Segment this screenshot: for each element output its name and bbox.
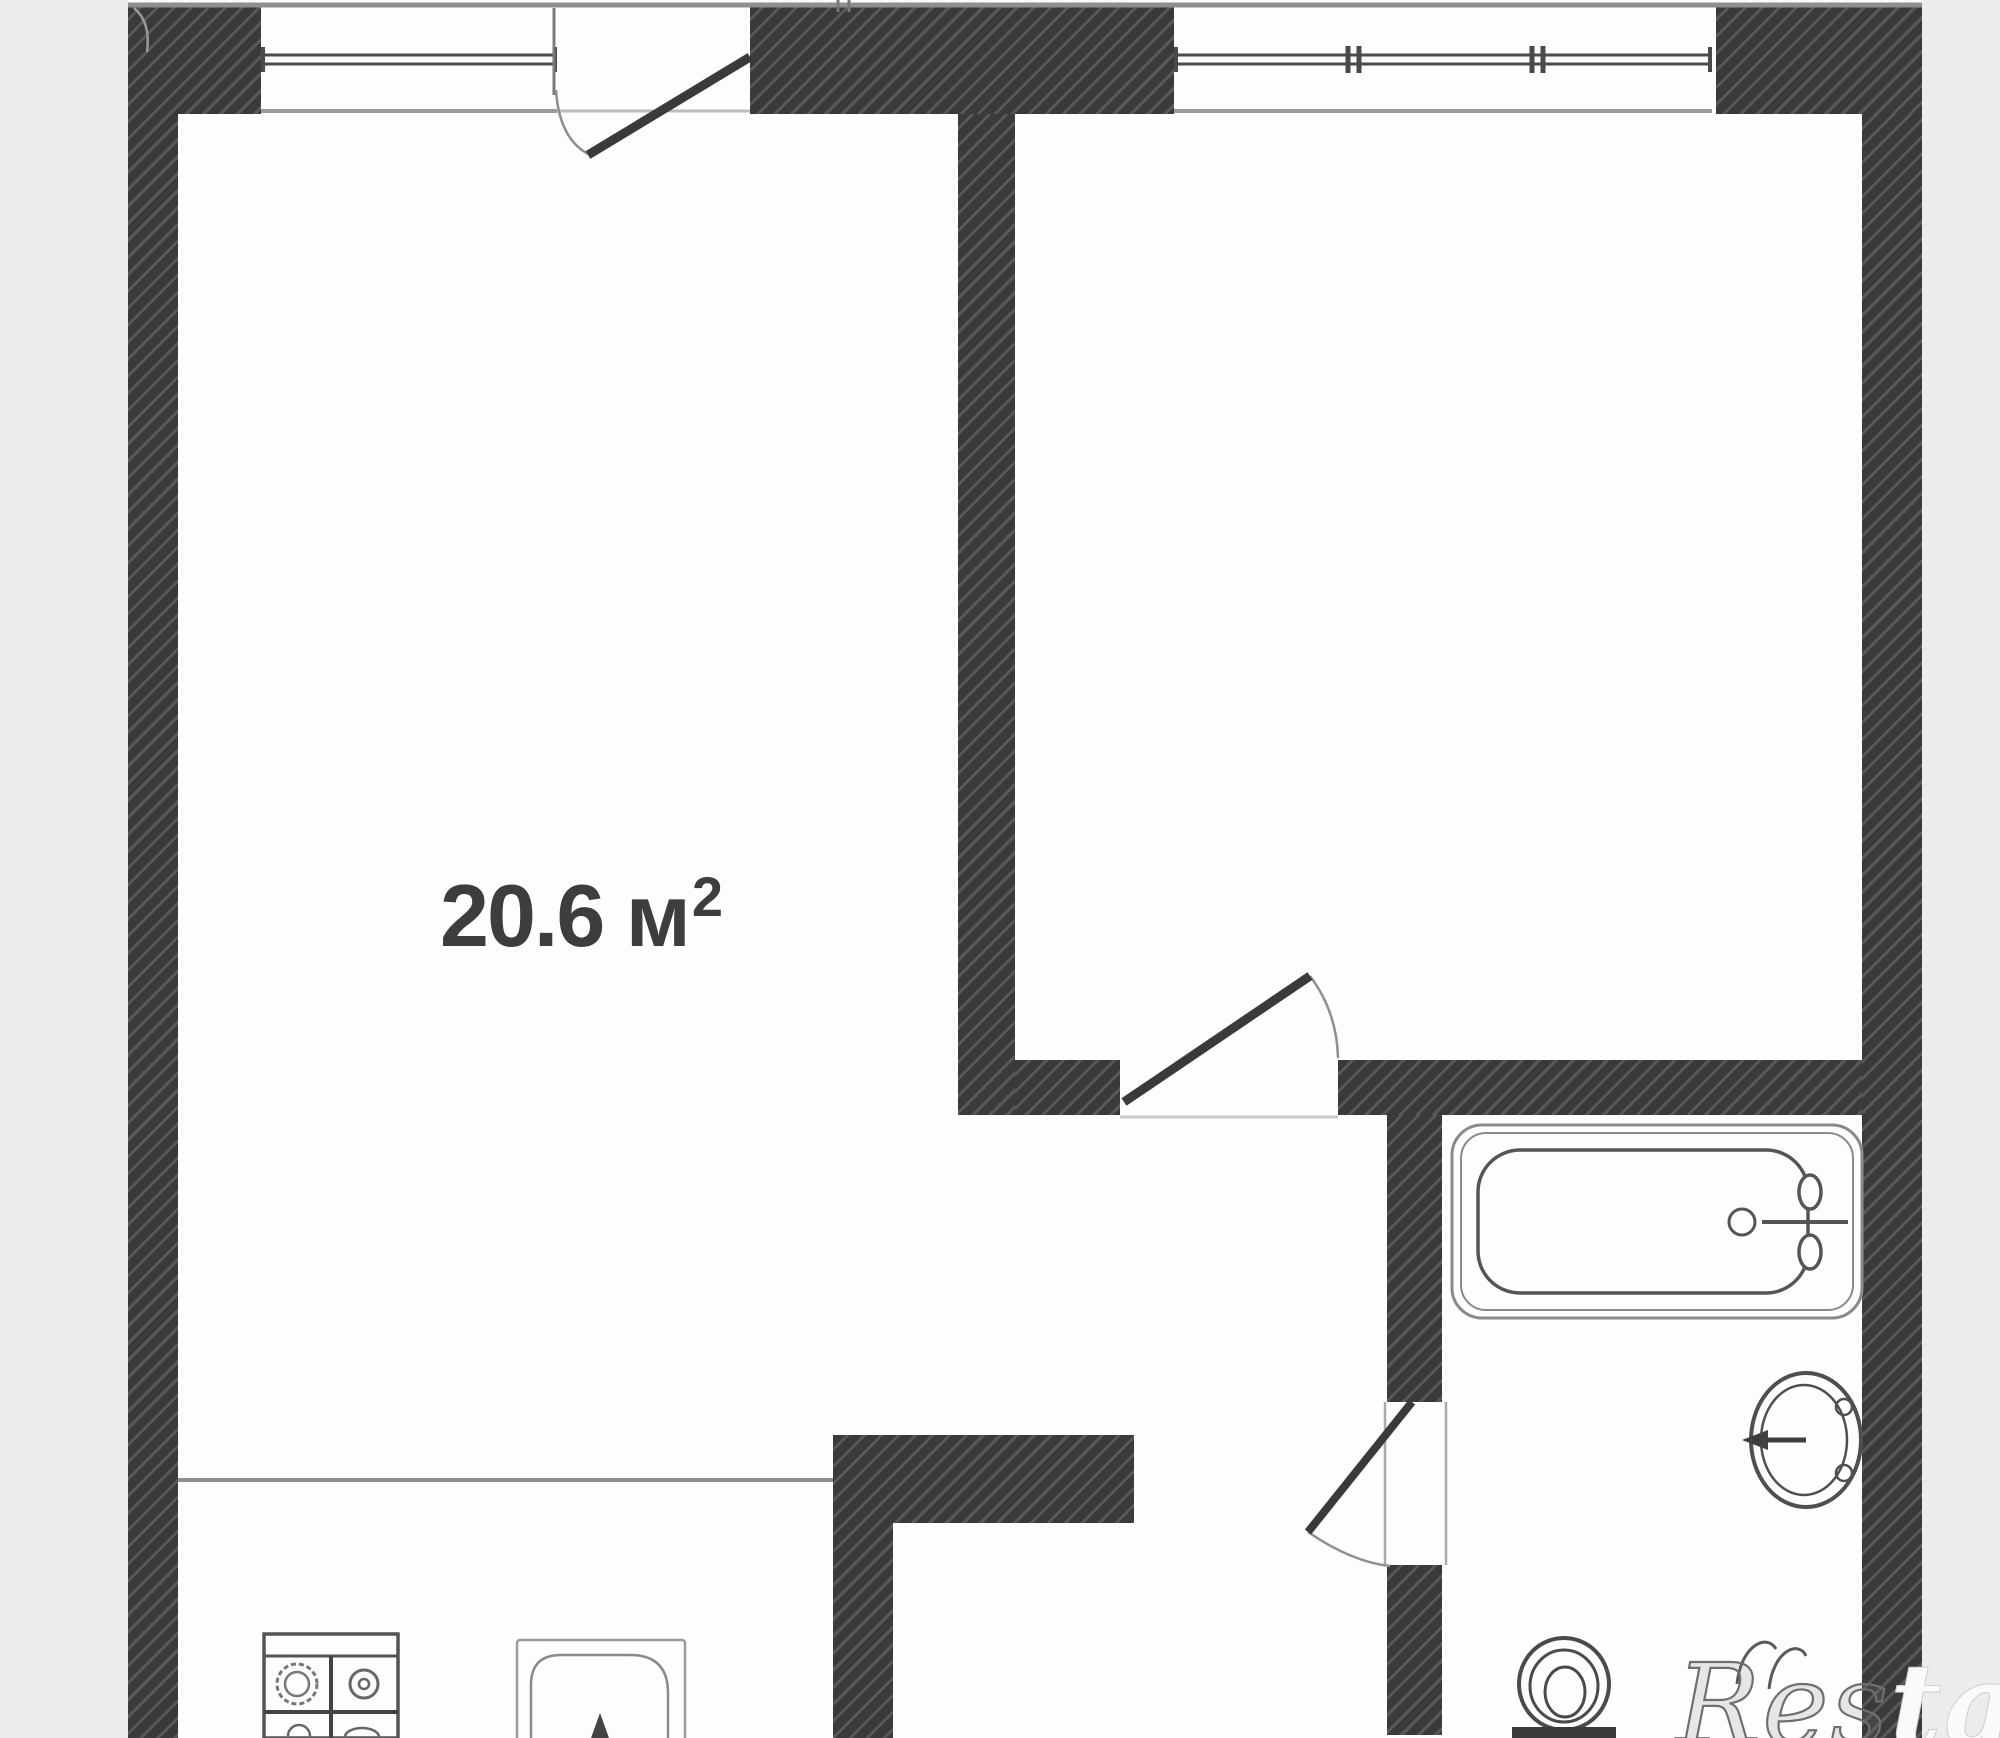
bathtub-icon (1452, 1125, 1862, 1318)
bathroom-door (1308, 1402, 1446, 1566)
door-leaf (588, 57, 750, 155)
washbasin-icon (1742, 1373, 1861, 1507)
watermark-solid-part: tate (1890, 1640, 2000, 1738)
plan-linework (0, 0, 2000, 1738)
toilet-icon (1512, 1638, 1616, 1738)
top-left-corner-mark (134, 8, 148, 52)
stove-4-burner-icon (264, 1634, 398, 1738)
kitchen-sink-icon (517, 1640, 685, 1738)
area-superscript: 2 (692, 865, 723, 928)
door-swing-arc (556, 90, 588, 154)
area-value: 20.6 м (440, 866, 689, 965)
door-swing-arc (1310, 976, 1338, 1058)
living-room-area-label: 20.6 м2 (440, 872, 723, 960)
watermark-outline-part: Res (1676, 1641, 1890, 1738)
hall-door (1120, 976, 1338, 1117)
floor-plan: 20.6 м2 Restate (0, 0, 2000, 1738)
window-left (261, 47, 557, 111)
door-leaf (1124, 976, 1310, 1102)
window-right (1174, 46, 1712, 111)
door-leaf (1308, 1402, 1412, 1532)
door-swing-arc (1308, 1532, 1390, 1566)
balcony-door (554, 8, 750, 155)
watermark-logo: Restate (1676, 1650, 2000, 1738)
